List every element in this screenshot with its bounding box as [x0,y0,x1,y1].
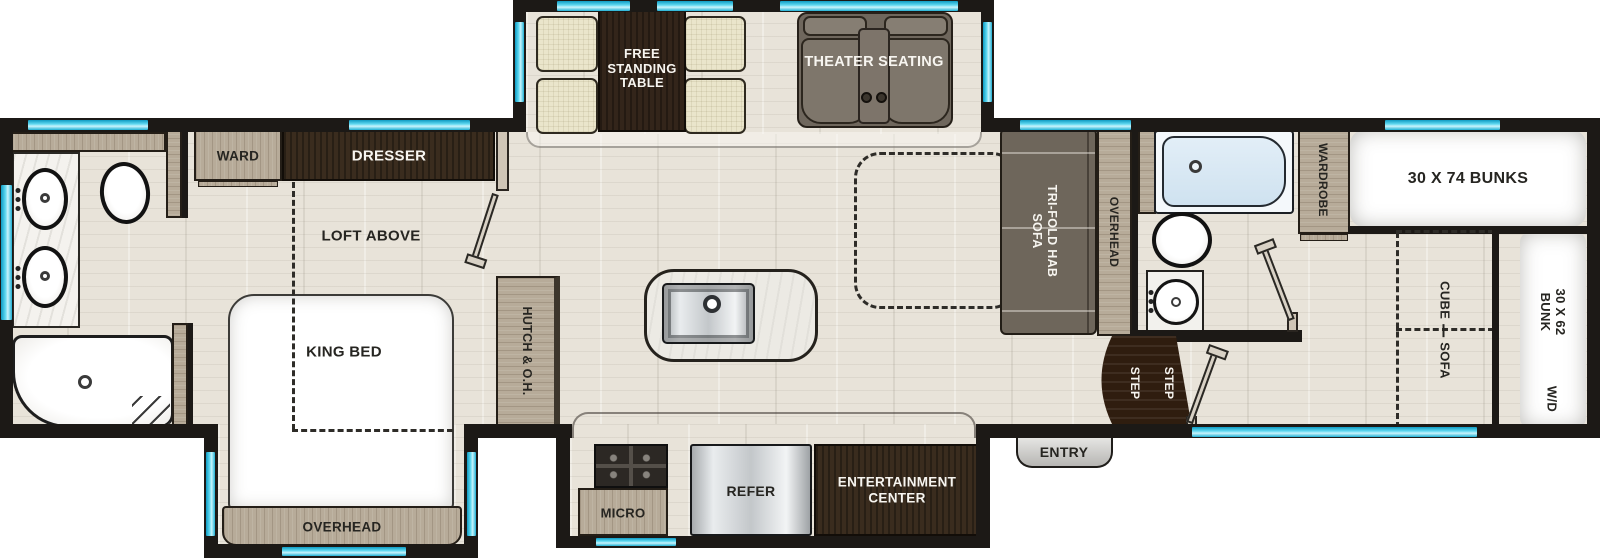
loft-outline [292,429,453,432]
drain [78,375,92,389]
kitchen-slideout-edge [572,412,976,438]
theater-console [858,28,890,124]
ward-label: WARD [217,149,259,164]
cupholder [861,92,872,103]
step-label: STEP [1162,367,1176,400]
theater-seating-label: THEATER SEATING [804,54,943,70]
drain [1171,297,1181,307]
rv-floorplan: FREE STANDING TABLE THEATER SEATING WARD… [0,0,1600,560]
drain [1189,160,1202,173]
entry-label: ENTRY [1040,444,1088,460]
theater-headrest [884,16,948,36]
window [657,1,733,11]
hutch-label: HUTCH & O.H. [520,306,534,395]
shower-door-glass [132,396,170,424]
step-platform [1098,336,1192,428]
free-standing-table-label: FREE STANDING TABLE [607,47,676,91]
kitchen-sink [662,283,755,344]
label-divider [1443,324,1445,337]
dinette-bench [684,16,746,72]
dinette-bench [536,78,598,134]
shower-partition [172,323,188,428]
door-pivot [496,129,509,191]
faucet [703,295,721,313]
bunk-30x62-label: 30 X 62 BUNK [1537,289,1567,336]
window [28,120,148,130]
king-bed-label: KING BED [306,344,382,361]
bunks-label: 30 X 74 BUNKS [1408,170,1528,188]
wall-right-cap [1587,118,1600,438]
shower-partition-wall [188,323,193,428]
window [983,22,992,102]
window [349,120,470,130]
dinette-bench [684,78,746,134]
kitchen-slideout-wall-right [976,424,990,548]
wall-bottom-mid [465,424,572,438]
micro-label: MICRO [601,506,646,521]
window [596,538,676,546]
drain [40,193,50,203]
window [515,22,524,102]
wall-bottom-front [0,424,218,438]
window [467,452,476,536]
window [1,185,12,320]
loft-outline-living [854,152,1018,309]
dresser-label: DRESSER [352,148,427,165]
window [1385,120,1500,130]
wardrobe-ledge [1300,234,1348,241]
theater-seat [882,38,950,124]
window [282,547,406,556]
dinette-bench [536,16,598,72]
bath-partition [166,128,182,218]
cupholder [876,92,887,103]
loft-above-label: LOFT ABOVE [321,228,420,245]
window [780,1,958,11]
washer-dryer-label: W/D [1545,386,1560,412]
bath-counter-top [8,132,166,152]
faucet [14,186,22,213]
drain [40,271,50,281]
king-bed [228,294,454,510]
kitchen-slideout-wall-left [556,424,570,548]
ward-cabinet-ledge [198,181,278,187]
toilet [1152,212,1212,268]
stove-cooktop [594,444,668,488]
entertainment-center-label: ENTERTAINMENT CENTER [838,474,956,505]
bath-partition-wall [182,128,188,218]
step-label: STEP [1128,367,1142,400]
window [206,452,215,536]
window [557,1,630,11]
cube-sofa-outline [1396,230,1494,233]
sofa-overhead-label: OVERHEAD [1107,197,1121,267]
bath-wall-left [1132,128,1138,342]
slideout-floor-edge [526,132,982,148]
tri-fold-sofa-label: TRI-FOLD HAB SOFA [1029,185,1059,277]
faucet [1147,288,1155,315]
refer-label: REFER [727,483,776,499]
bed-overhead-label: OVERHEAD [303,520,382,535]
faucet [14,264,22,291]
window [1020,120,1131,130]
window [1192,427,1477,437]
bathtub-basin [1162,136,1286,207]
wardrobe-label: WARDROBE [1316,143,1330,217]
cube-sofa-wall [1492,228,1499,428]
cube-sofa-label: CUBESOFA [1438,281,1453,379]
loft-outline [292,182,295,430]
